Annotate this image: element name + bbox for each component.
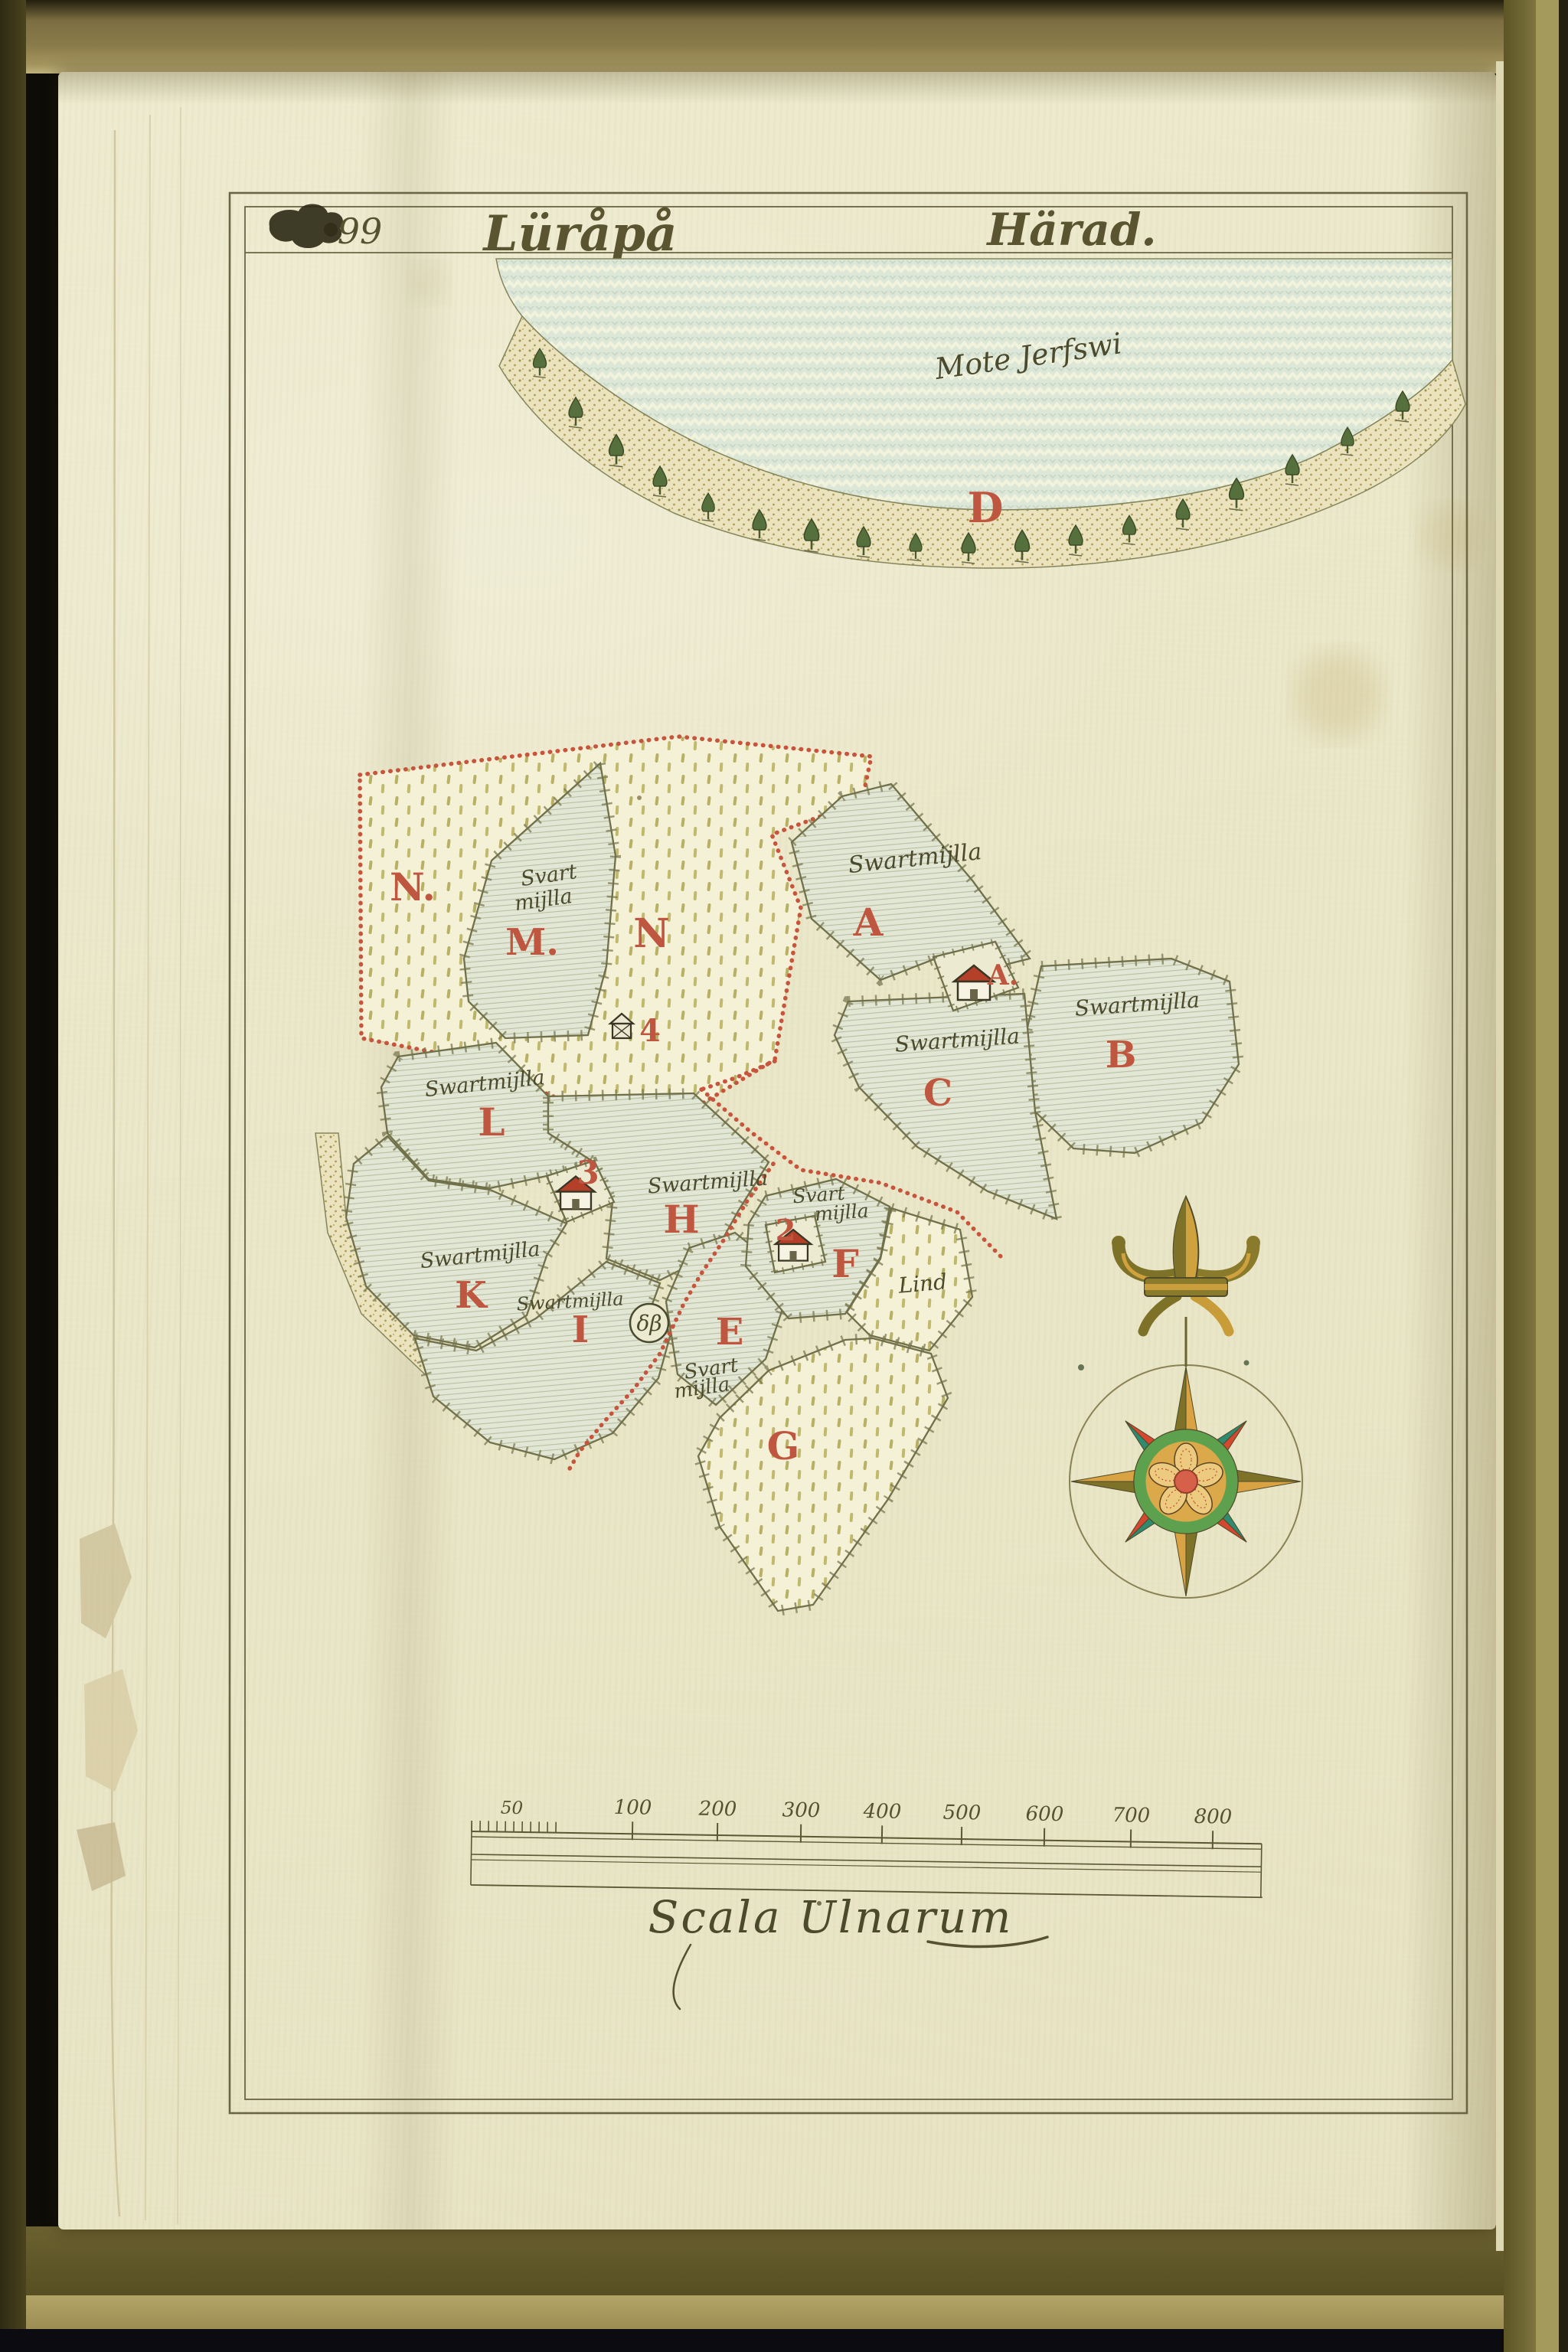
scale-label-300: 300 bbox=[782, 1798, 820, 1822]
letter-k: K bbox=[455, 1274, 488, 1317]
letter-h: H bbox=[663, 1197, 699, 1242]
letter-e: E bbox=[716, 1311, 744, 1354]
surveyor-monogram: δβ bbox=[630, 1304, 668, 1342]
page-title: Lüråpå bbox=[482, 205, 678, 263]
scale-label-400: 400 bbox=[862, 1800, 901, 1824]
header: 99 Lüråpå Härad. bbox=[269, 204, 1157, 263]
letter-l: L bbox=[478, 1099, 505, 1145]
letter-house2: 2 bbox=[776, 1213, 795, 1247]
letter-m: M. bbox=[505, 921, 559, 964]
letter-g: G bbox=[767, 1423, 800, 1468]
letter-house3: 3 bbox=[577, 1154, 599, 1191]
soil-label-f2: mijlla bbox=[814, 1200, 869, 1226]
scale-caption: Scala Ulnarum bbox=[648, 1891, 1047, 2009]
lind-label: Lind bbox=[897, 1269, 948, 1298]
letter-b: B bbox=[1106, 1034, 1137, 1076]
shore-letter: D bbox=[968, 483, 1004, 532]
lake: Mote Jerfswi D bbox=[496, 259, 1465, 568]
folio-number: 99 bbox=[338, 211, 383, 252]
scale-label-800: 800 bbox=[1194, 1805, 1232, 1829]
scale-label-600: 600 bbox=[1025, 1802, 1063, 1826]
letter-hut4: 4 bbox=[639, 1013, 661, 1049]
fleur-de-lis-icon bbox=[1112, 1197, 1260, 1367]
letter-c: C bbox=[923, 1072, 952, 1115]
scale-label-200: 200 bbox=[697, 1798, 737, 1821]
map-drawing: 99 Lüråpå Härad. Mote Jerfswi bbox=[0, 0, 1568, 2352]
letter-a-house: A. bbox=[987, 959, 1018, 991]
letter-n-right: N bbox=[633, 910, 670, 957]
page-stack-edges bbox=[77, 107, 181, 2224]
compass-rose bbox=[1070, 1197, 1302, 1598]
photographed-atlas-page: 99 Lüråpå Härad. Mote Jerfswi bbox=[0, 0, 1568, 2352]
district-title: Härad. bbox=[985, 204, 1156, 256]
letter-f: F bbox=[831, 1241, 859, 1286]
scale-label-500: 500 bbox=[942, 1802, 981, 1825]
letter-n-left: N. bbox=[390, 864, 436, 910]
scale-label-100: 100 bbox=[613, 1796, 652, 1820]
letter-a: A bbox=[853, 900, 884, 945]
svg-text:δβ: δβ bbox=[636, 1311, 661, 1336]
scale-label-700: 700 bbox=[1112, 1804, 1150, 1828]
scale-label-50: 50 bbox=[501, 1798, 524, 1818]
svg-text:Scala Ulnarum: Scala Ulnarum bbox=[648, 1891, 1014, 1943]
letter-i: I bbox=[572, 1308, 589, 1351]
scale-bar: 50 100 200 300 400 500 600 700 800 bbox=[471, 1794, 1264, 1897]
